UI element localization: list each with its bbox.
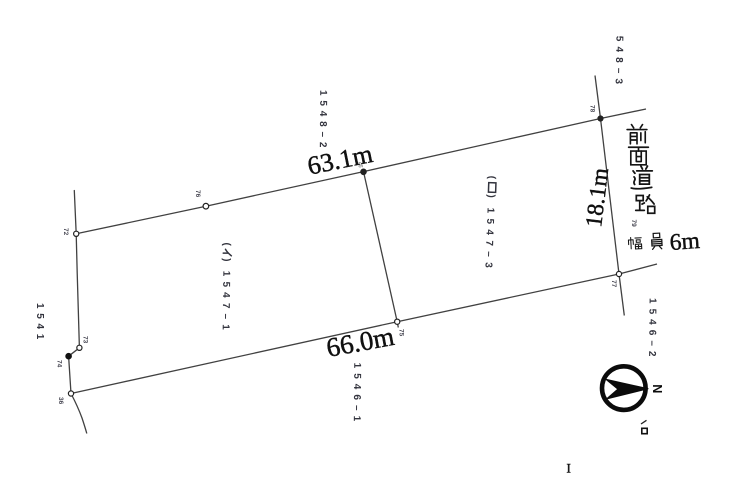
svg-text:73: 73 [82, 336, 89, 344]
svg-text:I: I [567, 461, 571, 476]
svg-text:6m: 6m [669, 228, 701, 256]
svg-text:76: 76 [194, 190, 201, 198]
svg-text:N: N [650, 384, 664, 393]
svg-text:77: 77 [610, 280, 617, 288]
svg-text:1546–2: 1546–2 [646, 298, 658, 357]
svg-text:79: 79 [630, 220, 637, 228]
svg-text:(: ( [486, 175, 497, 179]
svg-text:78: 78 [589, 105, 596, 113]
svg-text:75: 75 [398, 329, 405, 337]
svg-text:1548–2: 1548–2 [317, 90, 329, 148]
svg-text:36: 36 [57, 397, 64, 405]
svg-text:548–3: 548–3 [613, 36, 625, 85]
svg-text:(: ( [221, 242, 232, 246]
svg-text:): ) [485, 194, 496, 198]
svg-text:): ) [221, 258, 232, 261]
svg-text:1547–1: 1547–1 [220, 271, 232, 331]
svg-text:18.1m: 18.1m [581, 167, 614, 229]
svg-text:1547–3: 1547–3 [482, 207, 495, 268]
svg-text:1546–1: 1546–1 [351, 363, 363, 422]
svg-text:72: 72 [62, 228, 69, 236]
svg-text:66.0m: 66.0m [324, 321, 397, 363]
svg-text:74: 74 [56, 360, 63, 368]
svg-text:1541: 1541 [34, 303, 45, 340]
